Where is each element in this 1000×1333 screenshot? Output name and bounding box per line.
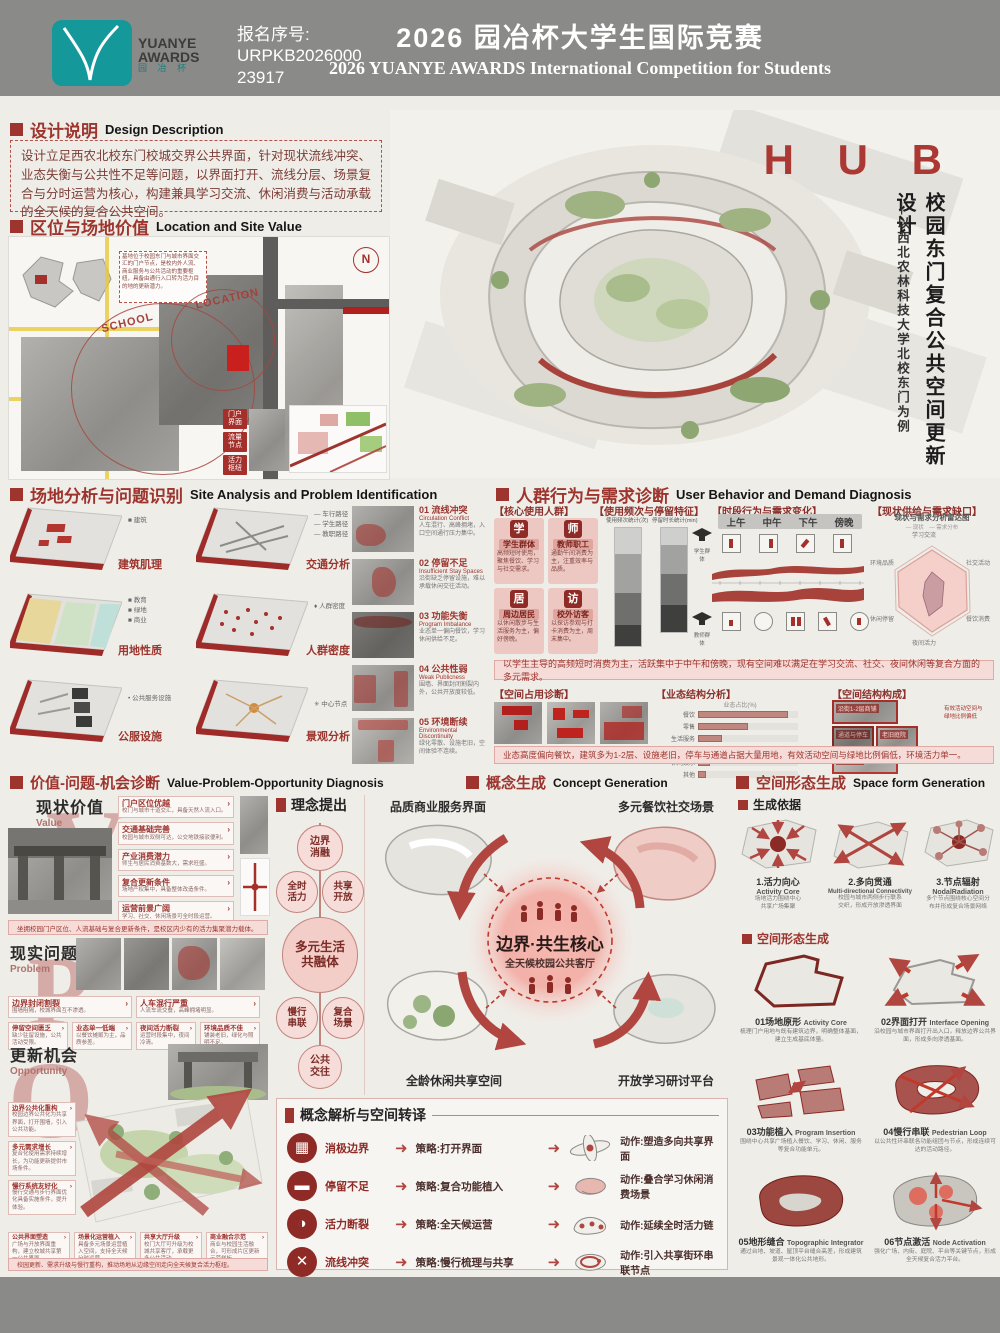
core-text: 边界·共生核心 全天候校园公共客厅 xyxy=(470,930,630,970)
translation-panel: 概念解析与空间转译 ▦ 消极边界 ➜ 策略:打开界面 ➜ 动作:塑造多向共享界面… xyxy=(276,1098,728,1270)
occupancy-plans xyxy=(494,702,648,744)
structure-caption: 通道与停车 xyxy=(836,730,870,739)
section-title-en: User Behavior and Demand Diagnosis xyxy=(676,487,912,502)
step-cn: 场地原形 xyxy=(765,1017,801,1027)
duration-chart: 停留时长统计(min) xyxy=(652,516,698,633)
occupancy-plan xyxy=(600,702,648,744)
basis-item: 1.活力向心 Activity Core 场地活力围绕中心 共享广场集聚 xyxy=(734,814,822,911)
activity-icon xyxy=(818,612,837,631)
value-tags-column: 门户 界面 流量 节点 活力 枢纽 xyxy=(223,409,247,478)
persona-card: 师 教师职工 通勤午间消费为主，注重效率与品质。 xyxy=(548,518,598,584)
step-no: 02 xyxy=(881,1017,891,1027)
structure-photo: 沿街1-2层商铺 xyxy=(832,700,898,724)
problem-photo xyxy=(220,938,265,990)
structure-caption: 老旧庭院 xyxy=(880,730,908,739)
step6-diagram xyxy=(880,1168,990,1232)
compass-icon: N xyxy=(353,247,379,273)
grad-cap-icon xyxy=(692,528,712,542)
translation-header-row: 概念解析与空间转译 xyxy=(285,1105,719,1125)
bubble-boundary: 边界 消融 xyxy=(297,825,343,871)
radar-panel: 现状与需求分析雷达图 — 现状 — 需求分布 学习交流 社交活动 餐饮消费 夜间… xyxy=(868,512,996,531)
section-design-description: 设计说明 Design Description xyxy=(10,117,223,142)
step4-diagram xyxy=(880,1058,990,1122)
basis-en: NodalRadiation xyxy=(918,889,998,896)
occupancy-plan xyxy=(547,702,595,744)
bar-seg xyxy=(661,528,687,545)
value-item: 交通基础完善›校园与城市双侧可达，公交地铁接驳便利。 xyxy=(118,822,234,844)
section-title-en: Concept Generation xyxy=(553,776,668,790)
step3-diagram xyxy=(746,1058,856,1122)
problem-item-title: 边界封闭割裂 xyxy=(12,999,60,1008)
translation-row: ▬ 停留不足 ➜ 策略:复合功能植入 ➜ 动作:叠合学习休闲消费场景 xyxy=(287,1171,717,1201)
business-structure-chart: 业态占比(%) 餐饮 零售 生活服务 文化学习 休闲娱乐 其他 xyxy=(660,700,820,781)
section-square-icon xyxy=(10,776,23,789)
axon-density xyxy=(196,592,308,663)
corner-label-br: 开放学习研讨平台 xyxy=(618,1072,714,1089)
step-cn: 界面打开 xyxy=(891,1017,927,1027)
business-track xyxy=(698,711,798,718)
translation-problem: 消极边界 xyxy=(325,1140,387,1156)
problem-text: 04 公共性弱 Weak Publicness 围墙、界面封闭割裂内外，公共开放… xyxy=(419,665,488,711)
value-item-desc: 师生与居民消费基数大，需求旺盛。 xyxy=(122,861,230,868)
problem-en: Circulation Conflict xyxy=(419,516,488,522)
bar2-title: 停留时长统计(min) xyxy=(652,516,698,524)
step-desc: 强化广场、内街、庭院、平台等关键节点，形成全天候复合活力平台。 xyxy=(872,1249,998,1265)
problem-photo-row xyxy=(76,938,265,990)
side-group-label: 学生群体 xyxy=(692,547,712,563)
visitor-icon: 访 xyxy=(564,590,582,608)
problem-text: 05 环境断续 Environmental Discontinuity 绿化零散… xyxy=(419,718,488,764)
value-title-cn: 现状价值 xyxy=(36,794,104,818)
section-title-en: Space form Generation xyxy=(853,776,985,790)
occupied-block xyxy=(573,710,589,718)
opportunity-item-desc: 复合化使用需求持续增长，为功能更新提供市场条件。 xyxy=(12,1151,72,1172)
axon-building-texture xyxy=(10,506,122,577)
tag-gateway: 门户 界面 xyxy=(223,409,247,429)
business-bar xyxy=(698,735,722,742)
period-row: 上午 中午 下午 傍晚 xyxy=(718,514,862,529)
hero-subtitle-sub: —以西北农林科技大学北校东门为例 xyxy=(893,202,912,482)
problem-desc: 围墙、界面封闭割裂内外，公共开放度较低。 xyxy=(419,682,488,698)
business-track xyxy=(698,723,798,730)
arrow-icon: ➜ xyxy=(548,1215,561,1233)
step-en: Pedestrian Loop xyxy=(932,1130,987,1137)
translation-row: ◑ 活力断裂 ➜ 策略:全天候运营 ➜ 动作:延续全时活力链 xyxy=(287,1209,717,1239)
step-en: Program Insertion xyxy=(795,1130,855,1137)
chevron-icon: › xyxy=(126,1025,128,1032)
red-route xyxy=(343,307,389,314)
persona-name: 周边居民 xyxy=(499,609,539,620)
problem-highlight xyxy=(372,567,396,597)
axis-diagram xyxy=(240,858,270,916)
axon-plate xyxy=(10,592,122,658)
step-cn: 慢行串联 xyxy=(893,1127,929,1137)
basis-desc: 场地活力围绕中心 共享广场集聚 xyxy=(734,896,822,912)
translation-action: 动作:叠合学习休闲消费场景 xyxy=(620,1171,717,1201)
proposal-header-row: 理念提出 xyxy=(276,795,364,815)
footer-bar xyxy=(0,1277,1000,1333)
activity-icon xyxy=(833,534,852,553)
proposal-header: 理念提出 xyxy=(291,795,347,815)
structure-note: 有效活动空间与 绿地比例偏低 xyxy=(944,706,996,721)
problem-title-cn: 现实问题 xyxy=(10,940,78,964)
section-title-cn: 场地分析与问题识别 xyxy=(30,482,183,507)
section-title-en: Location and Site Value xyxy=(156,219,302,234)
business-row: 生活服务 xyxy=(660,733,820,743)
axon-label: 交通分析 xyxy=(306,556,350,572)
stacked-bar-2 xyxy=(660,527,688,633)
section-site-analysis: 场地分析与问题识别 Site Analysis and Problem Iden… xyxy=(10,482,437,507)
activity-icon xyxy=(722,612,741,631)
problem-desc: 业态单一偏向餐饮，学习休闲供给不足。 xyxy=(419,629,488,645)
basis-radiation-diagram xyxy=(919,814,997,872)
problem-highlight xyxy=(178,946,210,980)
blob-dining xyxy=(614,827,716,900)
arrow-icon: ➜ xyxy=(395,1215,408,1233)
radar-axis: 夜间活力 xyxy=(912,638,936,647)
step-no: 01 xyxy=(755,1017,765,1027)
problem-highlight xyxy=(354,675,376,703)
axon-landscape xyxy=(196,678,308,749)
arrow-icon: ➜ xyxy=(548,1253,561,1271)
value-summary: 坐拥校园门户区位、人流基础与复合更新条件，是校区内少有的活力集聚潜力载体。 xyxy=(8,920,268,935)
header-rule xyxy=(432,1115,719,1116)
business-cat: 生活服务 xyxy=(660,734,698,743)
section-square-icon xyxy=(496,488,509,501)
activity-icons-top xyxy=(722,534,852,553)
problem-no: 02 xyxy=(419,558,429,568)
province-highlight xyxy=(35,275,47,284)
radar-axis: 休闲停留 xyxy=(870,614,894,623)
problem-en: Insufficient Stay Spaces xyxy=(419,569,488,575)
core-subtitle: 全天候校园公共客厅 xyxy=(470,955,630,970)
chevron-icon: › xyxy=(62,1025,64,1032)
problem-no: 01 xyxy=(419,505,429,515)
basis-header: 生成依据 xyxy=(753,796,801,813)
bar-seg xyxy=(661,605,687,632)
opportunity-item-title: 公共界面塑造 xyxy=(12,1235,48,1242)
chevron-icon: › xyxy=(262,1235,264,1242)
problem-photo xyxy=(352,506,414,552)
bar-seg xyxy=(615,554,641,593)
core-title: 边界·共生核心 xyxy=(470,930,630,955)
problem-text: 02 停留不足 Insufficient Stay Spaces 沿街缺乏停留设… xyxy=(419,559,488,605)
student-icon: 学 xyxy=(510,520,528,538)
bubble-slow: 慢行 串联 xyxy=(276,997,318,1039)
problem-item: 01 流线冲突 Circulation Conflict 人车混行、高峰拥堵，入… xyxy=(352,506,488,552)
steps-header-row: 空间形态生成 xyxy=(742,930,829,947)
side-group-label: 教师群体 xyxy=(692,631,712,647)
occupied-block xyxy=(557,728,583,738)
opportunity-item: 边界公共化重构›校园边界公共化为共享界面，打开围墙，引入公共功能。 xyxy=(8,1102,76,1137)
period-afternoon: 下午 xyxy=(798,515,817,529)
value-item-title: 运营前景广阔 xyxy=(122,904,170,913)
business-row: 餐饮 xyxy=(660,709,820,719)
problem-en: Program Imbalance xyxy=(419,622,488,628)
chevron-icon: › xyxy=(227,904,230,913)
translation-problem: 流线冲突 xyxy=(325,1254,387,1270)
chevron-icon: › xyxy=(227,852,230,861)
persona-desc: 高频短时使用，聚焦餐饮、学习与社交需求。 xyxy=(497,551,541,574)
opportunity-item-title: 商业融合示范 xyxy=(210,1235,246,1242)
business-cat: 零售 xyxy=(660,722,698,731)
problem-cn: 流线冲突 xyxy=(432,505,468,515)
activity-icons-bottom xyxy=(722,612,869,631)
problem-item: 02 停留不足 Insufficient Stay Spaces 沿街缺乏停留设… xyxy=(352,559,488,605)
arrow-icon: ➜ xyxy=(395,1139,408,1157)
bubble-scene: 复合 场景 xyxy=(322,997,364,1039)
opportunity-item-desc: 慢行交通与步行界面优化具备实施条件，提升体验。 xyxy=(12,1190,72,1211)
problem-photo xyxy=(124,938,169,990)
tag-flow: 流量 节点 xyxy=(223,432,247,452)
activity-stream-chart xyxy=(712,556,864,608)
step-desc: 以公共性环串联各功能组团与节点，形成连续可达的活动路径。 xyxy=(872,1139,998,1155)
header-square-icon xyxy=(742,934,752,944)
occupied-block xyxy=(604,722,644,740)
value-item: 门户区位优越›校门与城市干道交汇，具备天然人流入口。 xyxy=(118,796,234,818)
chevron-icon: › xyxy=(125,999,128,1008)
hero-render-area: H U B 校园东门复合公共空间更新设计 —以西北农林科技大学北校东门为例 xyxy=(390,110,1000,478)
chevron-icon: › xyxy=(196,1235,198,1242)
translation-row: ✕ 流线冲突 ➜ 策略:慢行梳理与共享 ➜ 动作:引入共享街环串联节点 xyxy=(287,1247,717,1277)
section-square-icon xyxy=(10,220,23,233)
translation-strategy: 策略:全天候运营 xyxy=(416,1217,540,1232)
persona-grid: 学 学生群体 高频短时使用，聚焦餐饮、学习与社交需求。 师 教师职工 通勤午间消… xyxy=(494,518,600,654)
chevron-icon: › xyxy=(227,799,230,808)
teacher-icon: 师 xyxy=(564,520,582,538)
step-en: Interface Opening xyxy=(930,1020,990,1027)
problem-en: Environmental Discontinuity xyxy=(419,728,488,740)
problem-cn: 环境断续 xyxy=(432,717,468,727)
logo-wordmark: YUANYE AWARDS 园 冶 杯 xyxy=(138,36,199,73)
activity-icon xyxy=(722,534,741,553)
step-en: Activity Core xyxy=(804,1020,847,1027)
axon-label: 景观分析 xyxy=(306,728,350,744)
problem-item-card: 人车混行严重›人流车流交叠，高峰拥堵明显。 xyxy=(136,996,260,1018)
problem-item-title: 业态单一低端 xyxy=(76,1025,115,1032)
step-desc: 围绕中心共享广场植入餐饮、学习、休闲、服务等复合功能单元。 xyxy=(738,1139,864,1155)
value-item: 复合更新条件›场地产权集中，具备整体改造条件。 xyxy=(118,875,234,897)
sketch-open-interface xyxy=(568,1135,612,1161)
axon-facilities xyxy=(10,678,122,749)
value-item-title: 交通基础完善 xyxy=(122,825,170,834)
step-cn: 地形缝合 xyxy=(749,1237,785,1247)
activity-icon xyxy=(786,612,805,631)
bubble-share: 共享 开放 xyxy=(322,871,364,913)
proposal-panel: 理念提出 边界 消融 全时 活力 共享 开放 多元生活 共融体 慢行 串联 复合… xyxy=(276,795,365,1095)
chevron-icon: › xyxy=(70,1105,72,1112)
section-title-en: Value-Problem-Opportunity Diagnosis xyxy=(167,776,384,790)
crossing-icon: ✕ xyxy=(287,1247,317,1277)
location-map-collage: 基地位于校园东门与城市界面交汇的门户节点，是校内外人流、商业服务与公共活动的重要… xyxy=(8,236,390,480)
step-no: 06 xyxy=(884,1237,894,1247)
value-item-desc: 校园与城市双侧可达，公交地铁接驳便利。 xyxy=(122,835,230,842)
bar-seg xyxy=(661,545,687,574)
basis-desc: 多个节点围绕核心空间分 布并形成复合场景网络 xyxy=(918,896,998,912)
logo-line1: YUANYE xyxy=(138,36,199,50)
concept-cycle: 品质商业服务界面 多元餐饮社交场景 全龄休闲共享空间 开放学习研讨平台 xyxy=(366,790,734,1090)
axon-plate xyxy=(196,592,308,658)
translation-strategy: 策略:打开界面 xyxy=(416,1141,540,1156)
axon-legend: ✳ 中心节点 xyxy=(314,700,347,710)
translation-action: 动作:延续全时活力链 xyxy=(620,1217,717,1232)
header-bar-icon xyxy=(285,1108,294,1123)
gate-graphic xyxy=(8,828,112,914)
basis-cn: 活力向心 xyxy=(764,877,800,887)
chevron-icon: › xyxy=(70,1183,72,1190)
corner-label-bl: 全龄休闲共享空间 xyxy=(406,1072,502,1089)
persona-desc: 通勤午间消费为主，注重效率与品质。 xyxy=(551,551,595,574)
value-item-desc: 校门与城市干道交汇，具备天然人流入口。 xyxy=(122,808,230,815)
value-item: 产业消费潜力›师生与居民消费基数大，需求旺盛。 xyxy=(118,849,234,871)
occupancy-plan xyxy=(494,702,542,744)
opportunity-item-title: 共享大厅升级 xyxy=(144,1235,180,1242)
axon-traffic xyxy=(196,506,308,577)
section-title-cn: 空间形态生成 xyxy=(756,772,846,793)
persona-name: 校外访客 xyxy=(553,609,593,620)
axon-legend: ■ 建筑 xyxy=(128,516,147,526)
translation-header: 概念解析与空间转译 xyxy=(300,1105,426,1125)
chevron-icon: › xyxy=(227,825,230,834)
axon-landuse xyxy=(10,592,122,663)
behavior-summary-2: 业态高度偏向餐饮，建筑多为1-2层、设施老旧，停车与通道占据大量用地，有效活动空… xyxy=(494,746,994,764)
chevron-icon: › xyxy=(227,878,230,887)
problem-highlight xyxy=(378,740,394,762)
step-no: 05 xyxy=(738,1237,748,1247)
competition-title-cn: 2026 园冶杯大学生国际竞赛 xyxy=(300,16,860,55)
province-map-icon xyxy=(15,245,115,315)
form-step: 01场地原形 Activity Core 梳理门户用地与既有建筑边界，明确整体基… xyxy=(738,948,864,1044)
section-title-cn: 设计说明 xyxy=(30,117,98,142)
persona-card: 访 校外访客 以探访参观与打卡消费为主，周末集中。 xyxy=(548,588,598,654)
basis-no: 3. xyxy=(936,877,944,887)
logo-line2: AWARDS xyxy=(138,50,199,64)
business-cat: 餐饮 xyxy=(660,710,698,719)
problem-no: 03 xyxy=(419,611,429,621)
business-row: 零售 xyxy=(660,721,820,731)
chevron-icon: › xyxy=(70,1144,72,1151)
step1-diagram xyxy=(746,948,856,1012)
axon-plate xyxy=(10,678,122,744)
activity-icon xyxy=(754,612,773,631)
axon-legend: ■ 教育 ■ 绿地 ■ 商业 xyxy=(128,596,147,625)
value-item-title: 门户区位优越 xyxy=(122,799,170,808)
basis-item: 2.多向贯通 Multi-directional Connectivity 校园… xyxy=(824,814,916,910)
header-square-icon xyxy=(738,800,748,810)
problem-photo xyxy=(352,559,414,605)
opportunity-item-title: 场景化运营植入 xyxy=(78,1235,120,1242)
chevron-icon: › xyxy=(64,1235,66,1242)
opportunity-summary: 校园更新、需求升级与慢行重构，推动场地从边缘空间走向全天候复合活力枢纽。 xyxy=(8,1258,268,1271)
radar-axis: 餐饮消费 xyxy=(966,614,990,623)
problem-photo xyxy=(352,718,414,764)
opportunity-item: 慢行系统友好化›慢行交通与步行界面优化具备实施条件，提升体验。 xyxy=(8,1180,76,1215)
problem-highlight xyxy=(358,720,408,730)
gate-photo xyxy=(8,828,112,914)
opportunity-illustration xyxy=(56,1062,268,1230)
problem-item-title: 环境品质不佳 xyxy=(204,1025,243,1032)
tree-photo xyxy=(240,796,268,854)
persona-name: 学生群体 xyxy=(499,539,539,550)
radar-svg xyxy=(874,532,990,652)
persona-desc: 以探访参观与打卡消费为主，周末集中。 xyxy=(551,621,595,644)
poster-page: YUANYE AWARDS 园 冶 杯 报名序号: URPKB2026000 2… xyxy=(0,0,1000,1333)
bubble-public: 公共 交往 xyxy=(298,1045,342,1089)
value-item-desc: 场地产权集中，具备整体改造条件。 xyxy=(122,887,230,894)
basis-en: Multi-directional Connectivity xyxy=(824,889,916,895)
step-desc: 沿校园与城市界面打开出入口，释放边界公共界面，形成多向渗透基面。 xyxy=(872,1029,998,1045)
form-step: 03功能植入 Program Insertion 围绕中心共享广场植入餐饮、学习… xyxy=(738,1058,864,1154)
logo-mark-icon xyxy=(52,20,132,86)
activity-icon xyxy=(796,534,815,553)
axon-legend: • 公共服务设施 xyxy=(128,694,171,704)
problem-highlight xyxy=(356,524,386,546)
bubble-center: 多元生活 共融体 xyxy=(282,917,358,993)
chevron-icon: › xyxy=(190,1025,192,1032)
problem-no: 05 xyxy=(419,717,429,727)
radar-axis: 学习交流 xyxy=(912,530,936,539)
period-noon: 中午 xyxy=(762,515,781,529)
axis-graphic xyxy=(241,859,269,915)
problem-desc: 沿街缺乏停留设施，难以承载休闲交往活动。 xyxy=(419,576,488,592)
basis-item: 3.节点辐射 NodalRadiation 多个节点围绕核心空间分 布并形成复合… xyxy=(918,814,998,911)
opportunity-item: 多元需求增长›复合化使用需求持续增长，为功能更新提供市场条件。 xyxy=(8,1141,76,1176)
business-bar xyxy=(698,771,706,778)
side-group-bottom: 教师群体 xyxy=(692,612,712,647)
step-desc: 梳理门户用地与既有建筑边界，明确整体基面，建立生成基底体量。 xyxy=(738,1029,864,1045)
bubble-alltime: 全时 活力 xyxy=(276,871,318,913)
translation-strategy: 策略:复合功能植入 xyxy=(416,1179,540,1194)
axon-plate xyxy=(196,506,308,572)
problem-photo xyxy=(352,665,414,711)
behavior-summary-1: 以学生主导的高频短时消费为主，活跃集中于中午和傍晚，现有空间难以满足在学习交流、… xyxy=(494,660,994,680)
arrow-icon: ➜ xyxy=(548,1139,561,1157)
problem-highlight xyxy=(354,616,412,628)
label-occupancy: 【空间占用诊断】 xyxy=(494,686,574,701)
step2-diagram xyxy=(880,948,990,1012)
header-bar: YUANYE AWARDS 园 冶 杯 报名序号: URPKB2026000 2… xyxy=(0,0,1000,96)
axon-plate xyxy=(10,506,122,572)
site-marker xyxy=(227,345,249,371)
section-title-en: Site Analysis and Problem Identification xyxy=(190,487,437,502)
basis-cn: 多向贯通 xyxy=(856,877,892,887)
axon-legend: ♦ 人群密度 xyxy=(314,602,345,612)
problem-item-desc: 人流车流交叠，高峰拥堵明显。 xyxy=(140,1008,256,1015)
boundary-icon: ▦ xyxy=(287,1133,317,1163)
translation-action: 动作:塑造多向共享界面 xyxy=(620,1133,717,1163)
basis-no: 2. xyxy=(848,877,856,887)
problem-item-title: 夜间活力断裂 xyxy=(140,1025,179,1032)
axon-label: 建筑肌理 xyxy=(118,556,162,572)
problem-text: 01 流线冲突 Circulation Conflict 人车混行、高峰拥堵，入… xyxy=(419,506,488,552)
value-heading: 现状价值 Value xyxy=(36,794,104,829)
translation-strategy: 策略:慢行梳理与共享 xyxy=(416,1255,540,1270)
radar-axis: 社交活动 xyxy=(966,558,990,567)
problem-en: Weak Publicness xyxy=(419,675,488,681)
header-bar-icon xyxy=(276,798,286,812)
form-step: 06节点激活 Node Activation 强化广场、内街、庭院、平台等关键节… xyxy=(872,1168,998,1264)
translation-action: 动作:引入共享街环串联节点 xyxy=(620,1247,717,1277)
radar-title: 现状与需求分析雷达图 xyxy=(868,512,996,523)
opportunity-left-items: 边界公共化重构›校园边界公共化为共享界面，打开围墙，引入公共功能。 多元需求增长… xyxy=(8,1102,76,1219)
steps-header: 空间形态生成 xyxy=(757,930,829,947)
basis-en: Activity Core xyxy=(734,889,822,896)
section-space-form: 空间形态生成 Space form Generation xyxy=(736,772,985,793)
sketch-stack-programs xyxy=(568,1173,612,1199)
label-core-users: 【核心使用人群】 xyxy=(494,503,574,518)
problem-title-en: Problem xyxy=(10,964,78,975)
radar-axis: 环境品质 xyxy=(870,558,894,567)
